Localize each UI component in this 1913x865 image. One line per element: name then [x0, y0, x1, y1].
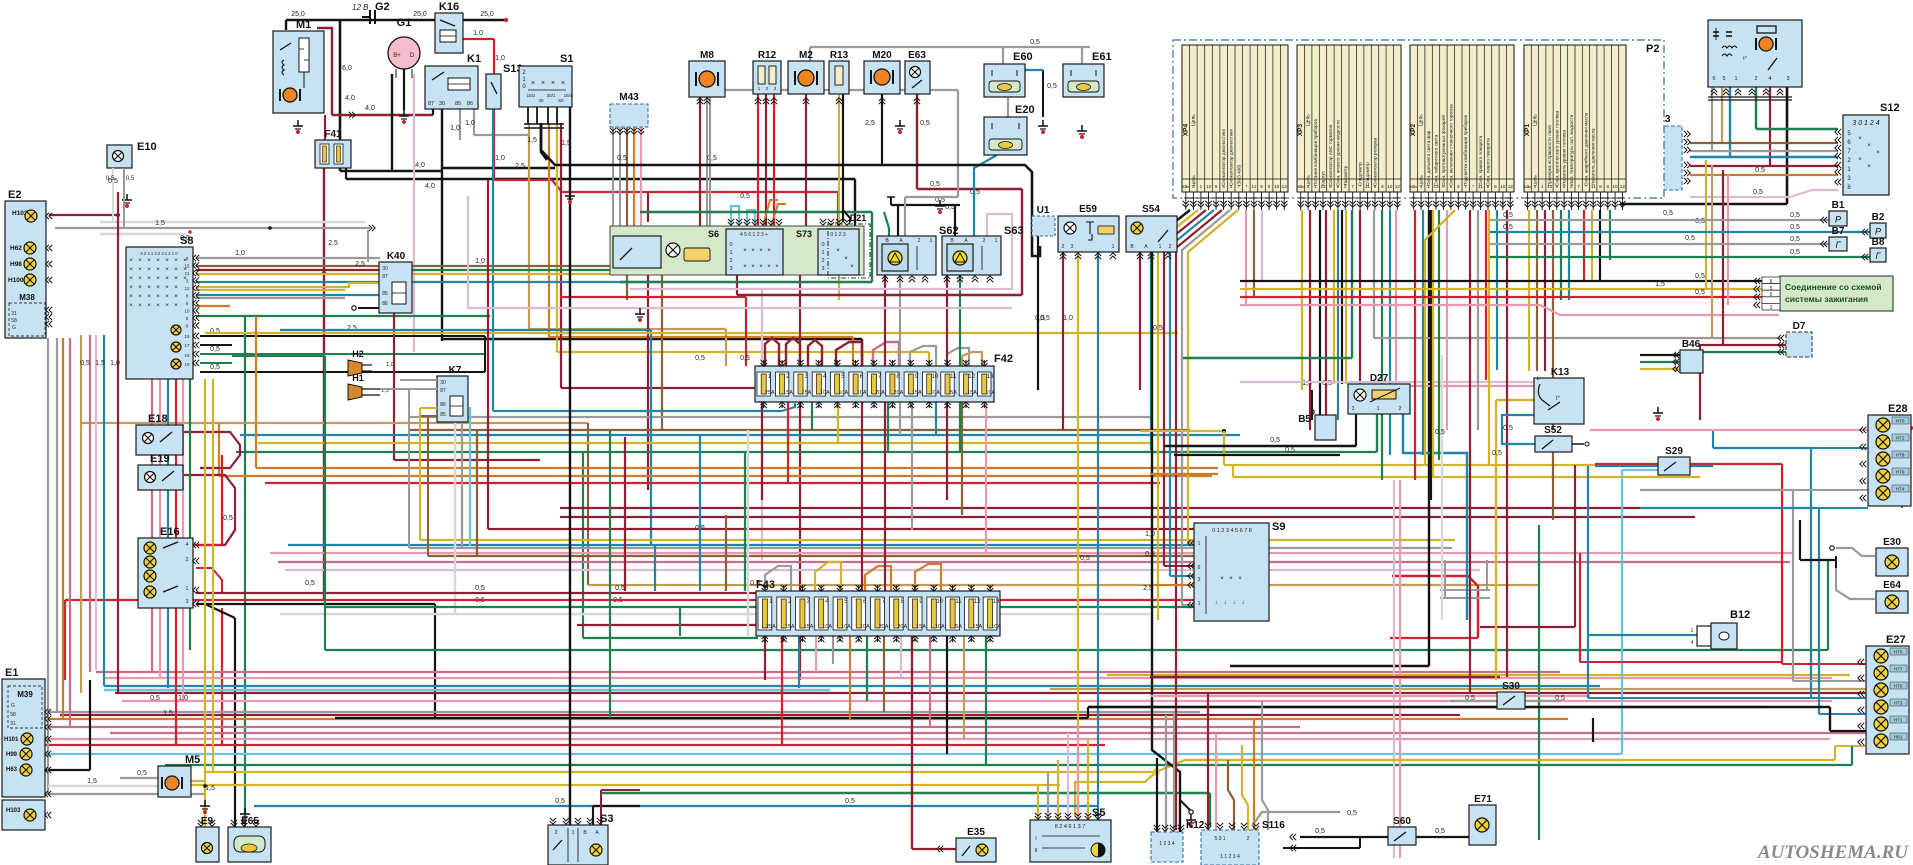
svg-text:3: 3	[729, 266, 732, 272]
svg-text:×: ×	[1220, 576, 1224, 582]
svg-text:B8: B8	[1872, 237, 1885, 248]
svg-text:12: 12	[968, 374, 975, 380]
svg-text:4: 4	[186, 542, 189, 548]
svg-text:Сигнализатор АБС тормозов: Сигнализатор АБС тормозов	[1328, 124, 1333, 186]
svg-text:30: 30	[440, 380, 446, 386]
svg-text:13: 13	[993, 599, 1000, 605]
svg-text:86: 86	[440, 402, 446, 408]
svg-text:3: 3	[1071, 244, 1074, 250]
svg-text:16: 16	[184, 334, 190, 339]
svg-text:S63: S63	[1004, 225, 1024, 237]
svg-text:0,5: 0,5	[1030, 39, 1040, 46]
svg-text:0,5: 0,5	[1790, 236, 1800, 243]
svg-text:2,5: 2,5	[865, 120, 875, 127]
svg-text:S29: S29	[1665, 446, 1683, 457]
svg-text:×: ×	[541, 80, 545, 87]
svg-text:25,0: 25,0	[413, 11, 427, 18]
svg-text:×: ×	[147, 293, 151, 300]
svg-text:×: ×	[165, 293, 169, 300]
svg-text:×: ×	[138, 266, 142, 273]
svg-text:0,5: 0,5	[80, 360, 90, 367]
svg-text:0,5: 0,5	[695, 355, 705, 362]
svg-text:Сигн. дальнего света фар: Сигн. дальнего света фар	[1426, 130, 1431, 186]
svg-text:0,5: 0,5	[1503, 224, 1513, 231]
svg-text:×: ×	[138, 302, 142, 309]
svg-text:×: ×	[743, 248, 747, 254]
svg-text:0,5: 0,5	[1790, 249, 1800, 256]
svg-text:4: 4	[1768, 76, 1771, 82]
svg-text:B2: B2	[1872, 212, 1885, 223]
svg-text:1: 1	[186, 586, 189, 592]
svg-text:15A: 15A	[972, 624, 982, 630]
svg-text:Сигн. аварийного давления масл: Сигн. аварийного давления масла	[1582, 112, 1588, 186]
svg-text:H74: H74	[1896, 487, 1905, 493]
svg-text:3: 3	[186, 599, 189, 605]
svg-text:1,0: 1,0	[178, 695, 188, 702]
svg-text:E71: E71	[1474, 794, 1492, 805]
svg-text:×: ×	[147, 266, 151, 273]
svg-text:F41: F41	[324, 129, 342, 140]
svg-text:S116: S116	[1262, 820, 1285, 831]
svg-text:Указатель давления масла: Указатель давления масла	[1591, 128, 1596, 186]
svg-text:1: 1	[1770, 305, 1773, 311]
svg-text:1: 1	[1734, 76, 1737, 82]
svg-text:M20: M20	[872, 50, 892, 61]
svg-text:×: ×	[156, 275, 160, 282]
svg-text:11: 11	[955, 599, 962, 605]
svg-text:31: 31	[10, 721, 16, 727]
svg-text:2: 2	[918, 238, 921, 244]
svg-text:G1: G1	[397, 17, 412, 29]
svg-text:10: 10	[1387, 184, 1393, 189]
svg-text:1: 1	[995, 238, 998, 244]
svg-text:×: ×	[138, 284, 142, 291]
svg-text:31: 31	[11, 311, 17, 317]
svg-text:3 0 1 2 4: 3 0 1 2 4	[1852, 120, 1879, 127]
svg-text:S12: S12	[1880, 102, 1900, 114]
svg-text:×: ×	[147, 257, 151, 264]
svg-text:S9: S9	[1272, 521, 1285, 533]
svg-text:1: 1	[1200, 184, 1203, 189]
svg-text:0,5: 0,5	[137, 770, 147, 777]
svg-text:Сигн. критического уровня топл: Сигн. критического уровня топлива	[1554, 110, 1559, 186]
svg-text:50: 50	[558, 98, 564, 103]
svg-text:2: 2	[729, 258, 732, 264]
svg-text:F42: F42	[994, 353, 1013, 365]
svg-text:6: 6	[1607, 184, 1610, 189]
svg-text:×: ×	[767, 248, 771, 254]
svg-text:ХР3: ХР3	[1297, 123, 1304, 136]
svg-text:12 В: 12 В	[352, 3, 369, 12]
svg-text:2: 2	[1062, 244, 1065, 250]
svg-text:Указатель уровня топлива: Указатель уровня топлива	[1562, 129, 1567, 186]
svg-text:1,5: 1,5	[155, 220, 165, 227]
svg-text:S6: S6	[708, 229, 719, 239]
svg-text:×: ×	[165, 284, 169, 291]
svg-text:20A: 20A	[875, 390, 885, 396]
svg-text:Сигн. включения стояночного то: Сигн. включения стояночного тормоза	[1448, 104, 1453, 186]
svg-text:10: 10	[1613, 184, 1619, 189]
svg-text:E63: E63	[908, 50, 926, 61]
svg-text:3: 3	[1786, 76, 1789, 82]
svg-text:Сигн. правого поворота: Сигн. правого поворота	[1478, 135, 1483, 186]
svg-text:×: ×	[767, 264, 771, 270]
svg-text:Питание комбинации приборов: Питание комбинации приборов	[1313, 119, 1318, 186]
svg-text:5A: 5A	[955, 624, 962, 630]
svg-text:10: 10	[1500, 184, 1506, 189]
svg-text:×: ×	[174, 293, 178, 300]
svg-text:0,5: 0,5	[930, 181, 940, 188]
svg-text:ХР1: ХР1	[1524, 123, 1531, 136]
svg-text:1: 1	[1198, 601, 1201, 607]
svg-text:Указ. температуры охл. жидкост: Указ. температуры охл. жидкости	[1569, 114, 1574, 186]
svg-text:8 2 4 6 1 3 7: 8 2 4 6 1 3 7	[1055, 824, 1086, 830]
svg-text:25A: 25A	[765, 390, 775, 396]
svg-text:0,5: 0,5	[1285, 447, 1295, 454]
svg-text:ХР2: ХР2	[1410, 123, 1417, 136]
svg-text:×: ×	[138, 275, 142, 282]
svg-text:5: 5	[1722, 76, 1725, 82]
svg-text:↓: ↓	[1242, 600, 1245, 606]
svg-text:Спидометр: Спидометр	[1365, 162, 1370, 186]
svg-text:0,5: 0,5	[920, 120, 930, 127]
svg-text:0,5: 0,5	[1435, 429, 1445, 436]
svg-text:12: 12	[184, 286, 190, 291]
svg-text:4 5 6 1 2 3 +: 4 5 6 1 2 3 +	[740, 232, 768, 238]
svg-text:Спидометр: Спидометр	[1358, 162, 1363, 186]
svg-text:E10: E10	[137, 141, 157, 153]
svg-text:P: P	[1835, 215, 1841, 225]
svg-text:S30: S30	[1502, 681, 1520, 692]
svg-text:0,5: 0,5	[106, 176, 115, 182]
svg-text:0,5: 0,5	[1695, 273, 1705, 280]
svg-text:Цепь: Цепь	[1532, 114, 1538, 126]
svg-text:S73: S73	[796, 229, 812, 239]
svg-text:Сигнализатор резерва: Сигнализатор резерва	[1373, 138, 1378, 186]
svg-text:12: 12	[1508, 184, 1514, 189]
svg-text:U1: U1	[1037, 205, 1050, 216]
svg-text:M38: M38	[19, 293, 35, 302]
svg-text:1,0: 1,0	[495, 55, 505, 62]
svg-text:×: ×	[138, 293, 142, 300]
svg-text:0,5: 0,5	[740, 355, 750, 362]
svg-text:2: 2	[1457, 184, 1460, 189]
svg-text:↓: ↓	[1224, 600, 1227, 606]
svg-text:G: G	[11, 703, 15, 709]
svg-text:ХР4: ХР4	[1182, 123, 1189, 136]
svg-text:10A: 10A	[935, 624, 945, 630]
svg-text:0,5: 0,5	[845, 798, 855, 805]
svg-text:8: 8	[1260, 184, 1263, 189]
svg-text:H78: H78	[1896, 453, 1905, 459]
svg-text:(ЗМЗ 406): (ЗМЗ 406)	[1236, 164, 1241, 186]
svg-text:7: 7	[1351, 184, 1354, 189]
svg-text:D7: D7	[1793, 321, 1806, 332]
svg-text:E30: E30	[1883, 537, 1901, 548]
svg-text:Цепь: Цепь	[1306, 175, 1311, 186]
svg-text:E59: E59	[1079, 204, 1097, 215]
svg-text:H63: H63	[6, 767, 18, 773]
svg-text:0,5: 0,5	[1047, 83, 1057, 90]
svg-text:0,5: 0,5	[1663, 210, 1673, 217]
svg-text:×: ×	[836, 248, 840, 254]
svg-text:10A: 10A	[857, 390, 867, 396]
svg-text:1: 1	[821, 250, 824, 256]
svg-text:86: 86	[467, 101, 473, 107]
svg-text:1,0: 1,0	[386, 362, 394, 368]
svg-text:t°: t°	[1556, 396, 1561, 402]
svg-text:1,0: 1,0	[473, 30, 483, 37]
svg-text:11: 11	[950, 374, 957, 380]
svg-text:0,5: 0,5	[1040, 315, 1050, 322]
svg-text:Цепь: Цепь	[1419, 175, 1424, 186]
svg-text:30: 30	[439, 101, 445, 107]
svg-text:12: 12	[974, 599, 981, 605]
svg-text:E19: E19	[150, 453, 170, 465]
svg-text:H98: H98	[10, 261, 22, 268]
svg-text:2: 2	[186, 557, 189, 563]
svg-text:9: 9	[1215, 184, 1218, 189]
svg-text:×: ×	[1858, 136, 1862, 142]
svg-text:Корпус: Корпус	[1321, 170, 1326, 186]
svg-text:3: 3	[1352, 406, 1355, 412]
svg-text:×: ×	[156, 284, 160, 291]
svg-text:1: 1	[572, 830, 575, 836]
svg-text:11: 11	[1252, 184, 1257, 189]
svg-text:0,5: 0,5	[617, 155, 627, 162]
svg-text:0,5: 0,5	[707, 155, 717, 162]
svg-text:×: ×	[156, 293, 160, 300]
svg-text:D21: D21	[850, 213, 867, 223]
svg-text:×: ×	[531, 80, 535, 87]
svg-text:H99: H99	[6, 752, 18, 758]
svg-text:M8: M8	[700, 50, 714, 61]
svg-text:Кол: Кол	[1410, 185, 1416, 189]
svg-text:0,5: 0,5	[1435, 828, 1445, 835]
svg-text:58: 58	[11, 318, 17, 324]
svg-text:4,0: 4,0	[425, 183, 435, 190]
svg-text:×: ×	[156, 302, 160, 309]
svg-text:Сигн. левого поворота: Сигн. левого поворота	[1486, 138, 1491, 186]
svg-text:Цепь: Цепь	[1191, 114, 1197, 126]
svg-text:1,0: 1,0	[475, 258, 485, 265]
svg-text:0,5: 0,5	[475, 585, 485, 592]
svg-text:0,5: 0,5	[1080, 555, 1090, 562]
svg-text:10A: 10A	[930, 390, 940, 396]
svg-text:1,5: 1,5	[95, 360, 105, 367]
svg-text:15A: 15A	[912, 390, 922, 396]
svg-text:×: ×	[1876, 150, 1880, 156]
svg-text:t°: t°	[1743, 56, 1747, 62]
svg-text:×: ×	[147, 302, 151, 309]
svg-text:2,5: 2,5	[328, 240, 338, 247]
svg-text:10A: 10A	[822, 624, 832, 630]
svg-text:3: 3	[1198, 577, 1201, 583]
svg-text:10A: 10A	[841, 624, 851, 630]
svg-text:M5: M5	[185, 754, 200, 766]
svg-text:1: 1	[1198, 541, 1201, 547]
svg-text:↓: ↓	[1215, 600, 1218, 606]
svg-text:II: II	[1770, 279, 1773, 285]
svg-text:0 1 2 3 4 5 6 7 8: 0 1 2 3 4 5 6 7 8	[1212, 528, 1252, 534]
svg-text:0: 0	[821, 242, 824, 248]
svg-text:0: 0	[729, 242, 732, 248]
svg-text:0,5: 0,5	[1492, 450, 1502, 457]
svg-text:H103: H103	[6, 808, 21, 814]
svg-text:H77: H77	[1894, 667, 1903, 673]
svg-text:0,5: 0,5	[555, 798, 565, 805]
svg-text:0,5: 0,5	[1755, 167, 1765, 174]
svg-text:1,5: 1,5	[163, 710, 173, 717]
svg-text:2: 2	[821, 258, 824, 264]
svg-text:18: 18	[184, 353, 190, 358]
svg-text:B5: B5	[1298, 414, 1311, 425]
svg-text:0,5: 0,5	[1503, 425, 1513, 432]
svg-text:×: ×	[138, 257, 142, 264]
svg-text:Соединение со схемой: Соединение со схемой	[1785, 282, 1882, 292]
svg-text:×: ×	[174, 257, 178, 264]
svg-text:E2: E2	[8, 189, 21, 201]
svg-text:20A: 20A	[879, 624, 889, 630]
svg-text:1: 1	[1541, 184, 1544, 189]
svg-text:×: ×	[174, 302, 178, 309]
svg-text:×: ×	[1867, 143, 1871, 149]
svg-text:S62: S62	[939, 225, 959, 237]
svg-text:Кол: Кол	[1183, 185, 1189, 189]
svg-text:M1: M1	[296, 19, 311, 31]
svg-text:1: 1	[1691, 628, 1694, 634]
svg-text:×: ×	[129, 293, 133, 300]
svg-text:×: ×	[850, 264, 854, 270]
svg-text:Сигнализатор диагностики: Сигнализатор диагностики	[1229, 129, 1234, 186]
svg-text:×: ×	[551, 80, 555, 87]
svg-text:6: 6	[1268, 184, 1271, 189]
svg-text:86: 86	[382, 301, 388, 307]
svg-text:0,5: 0,5	[223, 515, 233, 522]
svg-text:B12: B12	[1730, 609, 1750, 621]
svg-text:×: ×	[165, 302, 169, 309]
svg-text:7: 7	[1577, 184, 1580, 189]
svg-text:H2: H2	[352, 349, 364, 359]
svg-text:Сигнализатор диагностики: Сигнализатор диагностики	[1221, 129, 1226, 186]
svg-text:10: 10	[184, 309, 190, 314]
svg-text:0,5: 0,5	[740, 193, 750, 200]
svg-text:85: 85	[455, 101, 461, 107]
svg-text:6: 6	[1494, 184, 1497, 189]
svg-text:×: ×	[165, 275, 169, 282]
svg-text:R12: R12	[758, 50, 777, 61]
svg-text:H62: H62	[10, 245, 22, 252]
svg-text:10A: 10A	[860, 624, 870, 630]
svg-text:10: 10	[936, 599, 943, 605]
svg-text:H70: H70	[1896, 419, 1905, 425]
svg-text:0,5: 0,5	[305, 580, 315, 587]
svg-text:25,0: 25,0	[480, 11, 494, 18]
svg-text:H73: H73	[1894, 701, 1903, 707]
svg-text:6: 6	[1381, 184, 1384, 189]
svg-text:12: 12	[1395, 184, 1401, 189]
svg-text:K16: K16	[439, 1, 459, 13]
svg-text:P2: P2	[1646, 43, 1659, 55]
svg-text:6,0: 6,0	[342, 65, 352, 72]
svg-text:19: 19	[184, 362, 190, 367]
svg-text:15A: 15A	[967, 390, 977, 396]
svg-text:17: 17	[184, 343, 190, 348]
svg-text:*: *	[1245, 184, 1247, 189]
svg-text:K40: K40	[387, 251, 406, 262]
svg-text:30: 30	[382, 266, 388, 272]
svg-text:E16: E16	[160, 526, 180, 538]
svg-text:20A: 20A	[897, 624, 907, 630]
svg-text:H71: H71	[1894, 718, 1903, 724]
svg-text:Цепь: Цепь	[1419, 114, 1425, 126]
svg-text:S60: S60	[1393, 816, 1411, 827]
svg-text:0,5: 0,5	[1790, 212, 1800, 219]
svg-text:*: *	[1472, 184, 1474, 189]
svg-text:E28: E28	[1888, 403, 1908, 415]
svg-text:Тахометр: Тахометр	[1343, 165, 1348, 186]
svg-text:Проверка исправности ламп: Проверка исправности ламп	[1547, 125, 1552, 186]
svg-text:Сигн. габаритного света: Сигн. габаритного света	[1434, 134, 1439, 186]
svg-text:2: 2	[983, 238, 986, 244]
svg-text:13: 13	[987, 374, 994, 380]
svg-text:4.2 4.1 3.2 3.1 2 1 0: 4.2 4.1 3.2 3.1 2 1 0	[140, 251, 178, 256]
svg-text:8: 8	[1599, 184, 1602, 189]
svg-text:Сигн. противотуманных фонарей: Сигн. противотуманных фонарей	[1440, 115, 1446, 186]
svg-text:0,5: 0,5	[1503, 212, 1513, 219]
svg-text:E64: E64	[1883, 580, 1901, 591]
svg-text:2: 2	[1754, 76, 1757, 82]
svg-text:1,5: 1,5	[1655, 281, 1665, 288]
svg-text:0,5: 0,5	[1270, 437, 1280, 444]
svg-text:Кол: Кол	[1297, 185, 1303, 189]
svg-text:×: ×	[1858, 157, 1862, 163]
svg-text:×: ×	[147, 284, 151, 291]
svg-text:0,5: 0,5	[1685, 235, 1695, 242]
svg-text:10: 10	[932, 374, 939, 380]
svg-text:1,0: 1,0	[1145, 531, 1155, 538]
svg-text:S54: S54	[1142, 204, 1160, 215]
svg-text:15A: 15A	[783, 390, 793, 396]
svg-text:1,0: 1,0	[450, 125, 460, 132]
svg-text:1: 1	[1377, 406, 1380, 412]
svg-text:1: 1	[1112, 244, 1115, 250]
svg-text:×: ×	[1867, 164, 1871, 170]
svg-text:E1: E1	[5, 667, 18, 679]
svg-text:15A: 15A	[785, 624, 795, 630]
svg-text:2,5: 2,5	[355, 261, 365, 268]
svg-text:1,5: 1,5	[527, 137, 537, 144]
svg-text:0,5: 0,5	[210, 346, 220, 353]
svg-text:4,0: 4,0	[345, 95, 355, 102]
svg-text:2: 2	[1247, 836, 1250, 842]
svg-text:B+: B+	[393, 53, 401, 59]
svg-text:12: 12	[1282, 184, 1288, 189]
svg-text:1,0: 1,0	[465, 120, 475, 127]
svg-text:25A: 25A	[766, 624, 776, 630]
svg-text:H72: H72	[1896, 436, 1905, 442]
svg-text:E18: E18	[148, 413, 168, 425]
svg-text:0 1 2 3: 0 1 2 3	[830, 232, 846, 238]
svg-text:87: 87	[440, 388, 446, 394]
svg-text:30: 30	[538, 98, 544, 103]
svg-text:AUTOSHEMA.RU: AUTOSHEMA.RU	[1757, 842, 1909, 863]
svg-text:B1: B1	[1832, 200, 1845, 211]
svg-text:×: ×	[156, 266, 160, 273]
svg-text:0,5: 0,5	[1145, 551, 1155, 558]
svg-text:10A: 10A	[838, 390, 848, 396]
svg-text:M43: M43	[619, 92, 639, 103]
